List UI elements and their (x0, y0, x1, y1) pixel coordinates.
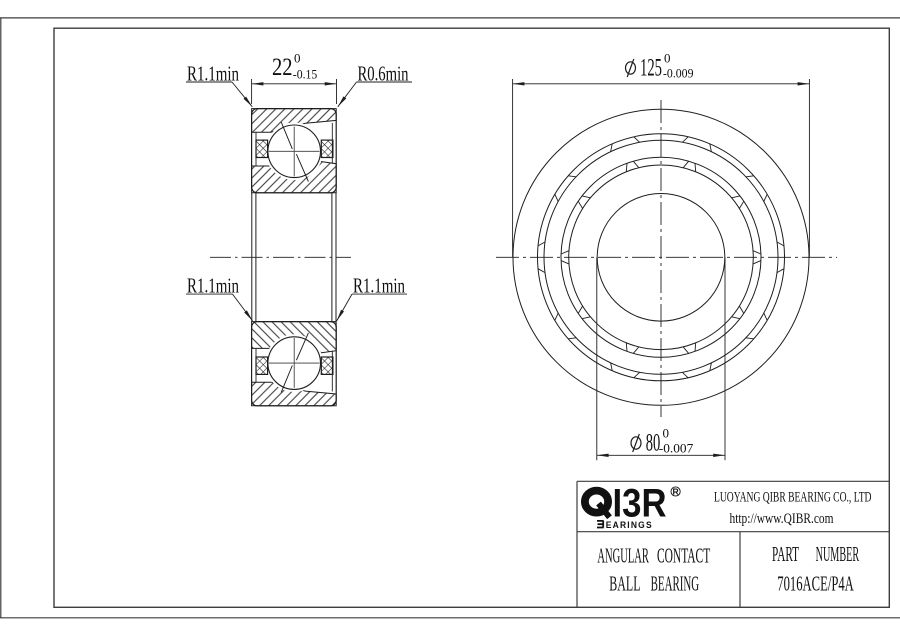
svg-text:-0.007: -0.007 (659, 441, 694, 456)
svg-text:PART: PART (772, 542, 799, 566)
svg-text:R: R (673, 487, 679, 497)
svg-text:22: 22 (272, 54, 293, 81)
svg-text:-0.009: -0.009 (663, 66, 694, 81)
svg-text:LUOYANG QIBR BEARING CO., LTD: LUOYANG QIBR BEARING CO., LTD (714, 489, 872, 505)
svg-text:NUMBER: NUMBER (816, 542, 860, 566)
svg-text:I3R: I3R (613, 482, 667, 526)
svg-text:ANGULAR: ANGULAR (597, 543, 649, 567)
svg-text:0: 0 (294, 50, 301, 65)
svg-text:EARINGS: EARINGS (606, 520, 653, 531)
svg-text:0: 0 (664, 50, 671, 65)
svg-text:-0.15: -0.15 (293, 66, 318, 81)
svg-text:http://www.QIBR.com: http://www.QIBR.com (730, 511, 834, 527)
svg-text:0: 0 (663, 425, 670, 440)
svg-text:BALL: BALL (609, 572, 640, 596)
svg-text:125: 125 (640, 54, 662, 81)
svg-text:BEARING: BEARING (651, 572, 700, 596)
svg-text:7016ACE/P4A: 7016ACE/P4A (777, 572, 854, 596)
svg-text:CONTACT: CONTACT (657, 543, 710, 567)
